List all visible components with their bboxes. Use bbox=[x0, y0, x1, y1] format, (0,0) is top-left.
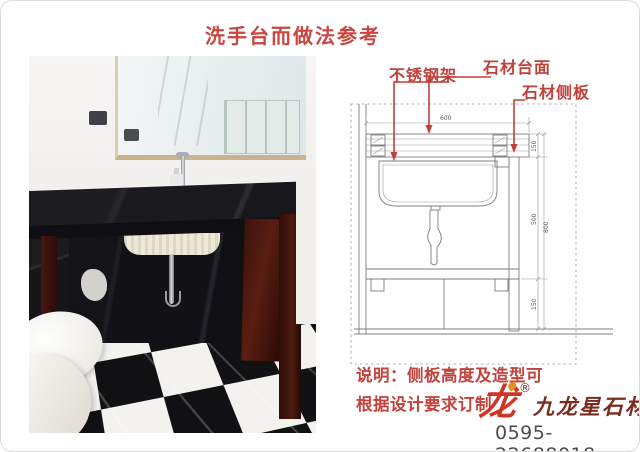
bathroom-photo bbox=[29, 56, 316, 433]
dim-body: 500 bbox=[531, 213, 538, 225]
brand-name: 九龙星石材 bbox=[533, 391, 640, 421]
dragon-logo-icon: 龙 bbox=[477, 383, 519, 421]
dim-top-width: 600 bbox=[440, 115, 452, 122]
section-drawing: 600 bbox=[349, 57, 617, 367]
p-trap bbox=[165, 291, 181, 307]
dim-overall: 800 bbox=[543, 221, 550, 233]
mirror bbox=[115, 56, 306, 160]
reference-sheet: 洗手台而做法参考 不锈钢架 石材台面 石材侧板 bbox=[0, 0, 640, 452]
phone-number: 0595-22688018 bbox=[495, 422, 639, 452]
basin-underside bbox=[124, 233, 220, 255]
mirror-reflected-shower bbox=[224, 100, 300, 154]
dim-kick: 150 bbox=[531, 298, 538, 310]
registered-mark: ® bbox=[519, 381, 531, 395]
leader-stone-side bbox=[514, 100, 525, 149]
wall-switch bbox=[89, 111, 107, 125]
cloth bbox=[81, 269, 107, 301]
wall-right-edge bbox=[296, 174, 316, 324]
wall-socket bbox=[124, 129, 139, 141]
brand-logo: 龙 ® 九龙星石材 bbox=[480, 383, 640, 421]
basin-outline bbox=[379, 161, 497, 206]
dim-apron: 150 bbox=[531, 140, 538, 152]
leader-stone-top bbox=[429, 77, 491, 130]
page-title: 洗手台而做法参考 bbox=[205, 20, 381, 49]
cabinet-door-right bbox=[241, 219, 283, 362]
mirror-reflection-marks bbox=[158, 56, 208, 146]
